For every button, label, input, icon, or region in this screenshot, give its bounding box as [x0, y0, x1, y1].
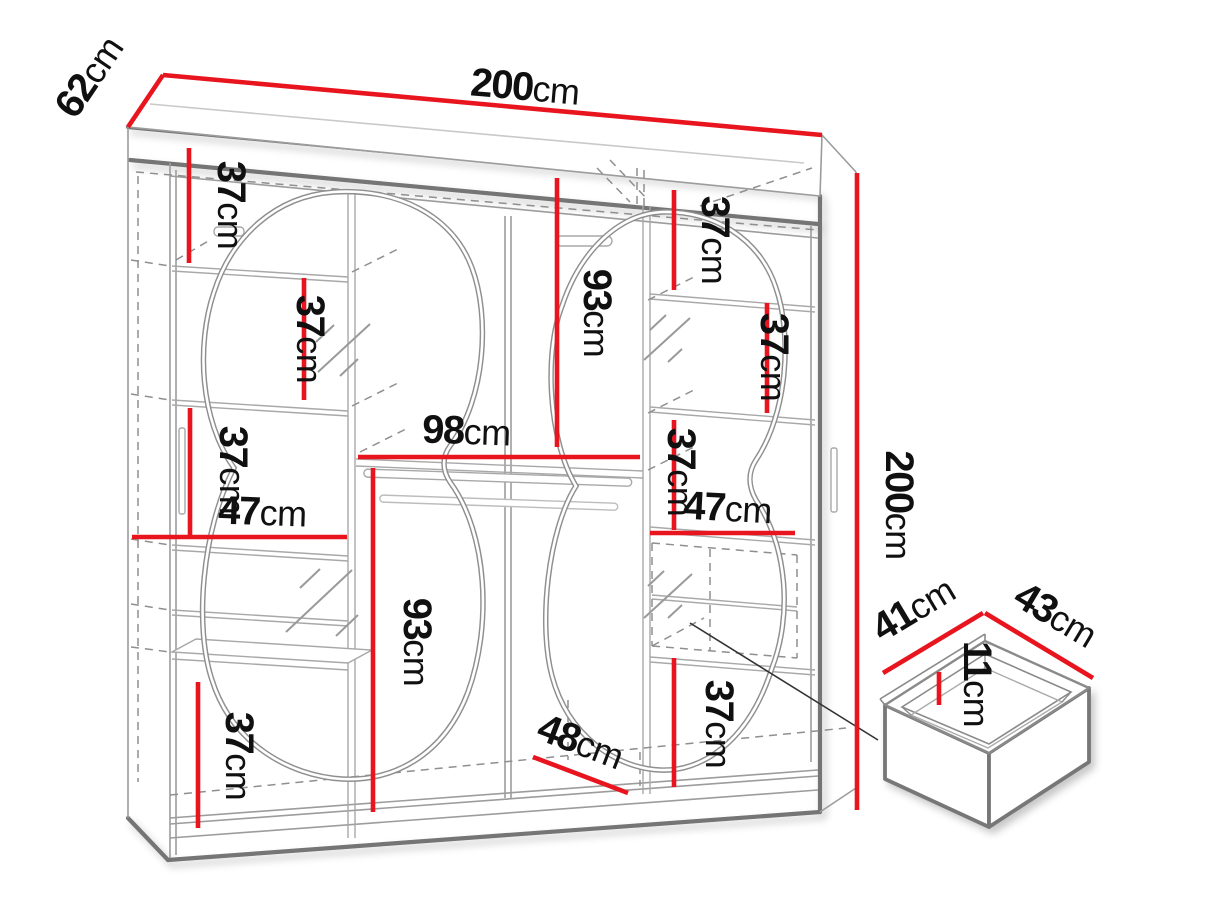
dim-drawer-height-unit: cm [956, 680, 997, 727]
dim-label-drawer-depth: 43cm [1006, 573, 1105, 656]
dim-left-top-gap-value: 37 [209, 161, 253, 203]
dim-right-bottom-gap-value: 37 [697, 680, 741, 722]
dim-center-width-unit: cm [463, 411, 511, 454]
wardrobe-dimension-diagram: 62cm 200cm 37cm 37cm 37cm 93cm 37cm 98cm… [0, 0, 1214, 911]
dim-center-upper-height-unit: cm [576, 310, 617, 357]
hanging-rod-back [380, 495, 618, 510]
dim-left-shelf-gap-2-unit: cm [289, 336, 330, 383]
dim-label-left-top-gap: 37cm [209, 161, 253, 250]
dim-label-height-right: 200cm [877, 450, 921, 559]
dim-right-shelf-gap-3-value: 37 [659, 428, 703, 470]
dim-label-depth-top: 62cm [46, 28, 132, 126]
dim-label-left-shelf-width: 47cm [217, 488, 307, 535]
dim-label-right-shelf-gap-2: 37cm [752, 313, 796, 402]
dim-left-shelf-width-unit: cm [259, 492, 307, 535]
dim-label-left-lower-height: 93cm [395, 598, 439, 687]
dim-left-shelf-gap-3-value: 37 [211, 426, 255, 468]
dim-label-bottom-depth: 48cm [531, 705, 629, 778]
diagram-canvas: 62cm 200cm 37cm 37cm 37cm 93cm 37cm 98cm… [0, 0, 1214, 911]
dim-label-right-shelf-width: 47cm [682, 484, 773, 533]
dim-center-width-value: 98 [421, 407, 465, 452]
dim-left-shelf-gap-2-value: 37 [288, 295, 332, 337]
dim-label-center-upper-height: 93cm [575, 269, 619, 358]
dim-drawer-height-value: 11 [955, 641, 999, 682]
dim-height-right-unit: cm [878, 513, 919, 560]
left-door-handle [179, 428, 185, 514]
dim-right-top-gap-value: 37 [693, 196, 737, 238]
dim-label-left-shelf-gap-2: 37cm [288, 295, 332, 384]
dim-left-bottom-gap-value: 37 [217, 712, 261, 754]
dim-right-bottom-gap-unit: cm [698, 721, 739, 768]
dim-right-top-gap-unit: cm [694, 237, 735, 284]
dim-label-center-width: 98cm [421, 407, 511, 454]
dim-label-left-bottom-gap: 37cm [217, 712, 261, 801]
dim-center-upper-height-value: 93 [575, 269, 619, 311]
dim-left-bottom-gap-unit: cm [218, 753, 259, 800]
dim-label-right-bottom-gap: 37cm [697, 680, 741, 769]
dim-label-right-top-gap: 37cm [693, 196, 737, 285]
dim-label-drawer-width: 41cm [864, 567, 963, 650]
dim-right-shelf-width-value: 47 [682, 484, 726, 530]
right-door-handle [831, 448, 837, 512]
dim-right-shelf-gap-2-unit: cm [753, 354, 794, 401]
dim-left-lower-height-unit: cm [396, 639, 437, 686]
dim-width-top-unit: cm [531, 68, 581, 113]
dim-left-shelf-width-value: 47 [217, 488, 260, 533]
dim-right-shelf-width-unit: cm [724, 488, 773, 531]
dim-left-top-gap-unit: cm [210, 202, 251, 249]
dim-label-drawer-height: 11cm [955, 641, 999, 727]
dim-height-right-value: 200 [877, 450, 921, 512]
dim-right-shelf-gap-2-value: 37 [752, 313, 796, 355]
dim-left-lower-height-value: 93 [395, 598, 439, 640]
dim-width-top-value: 200 [469, 60, 535, 109]
